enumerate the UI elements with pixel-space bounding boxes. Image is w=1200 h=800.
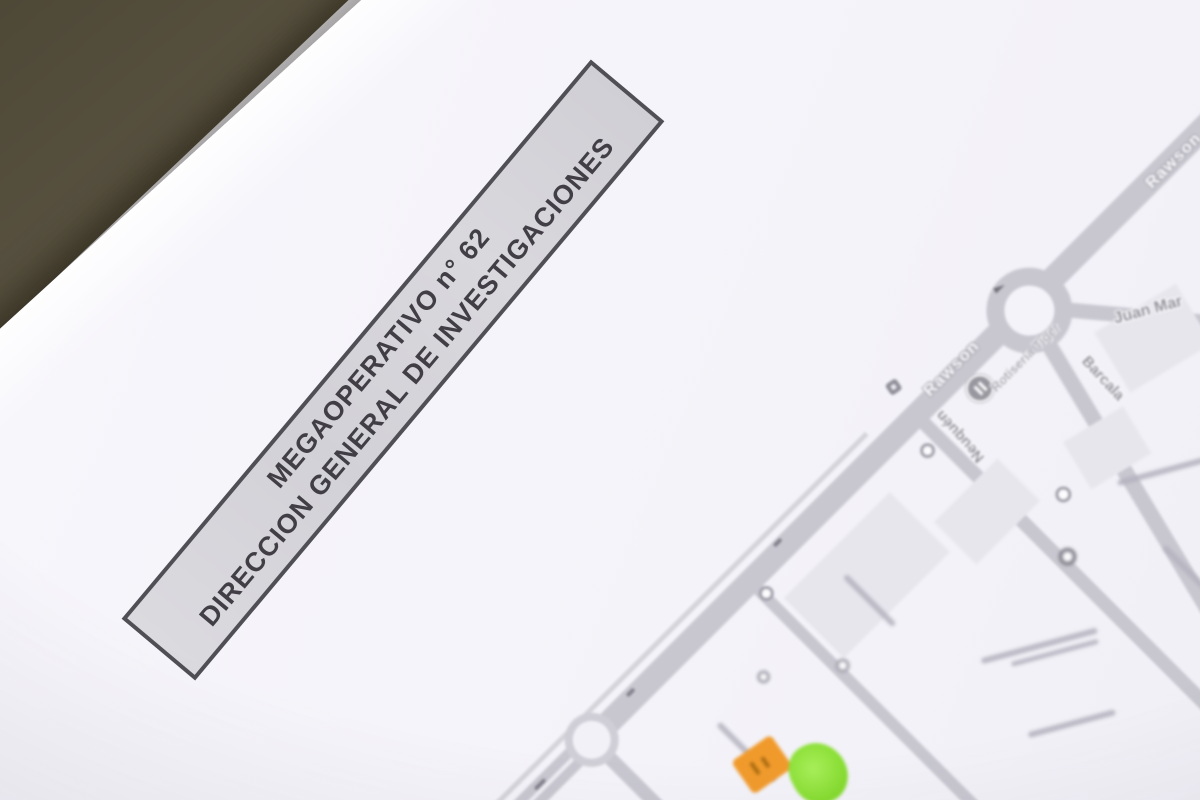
fork-knife-glyph <box>973 386 983 396</box>
photo-of-document: MEGAOPERATIVO n° 62 DIRECCION GENERAL DE… <box>0 0 1200 800</box>
highlight-orange-mark <box>749 761 760 775</box>
highlight-orange-mark <box>760 756 770 768</box>
